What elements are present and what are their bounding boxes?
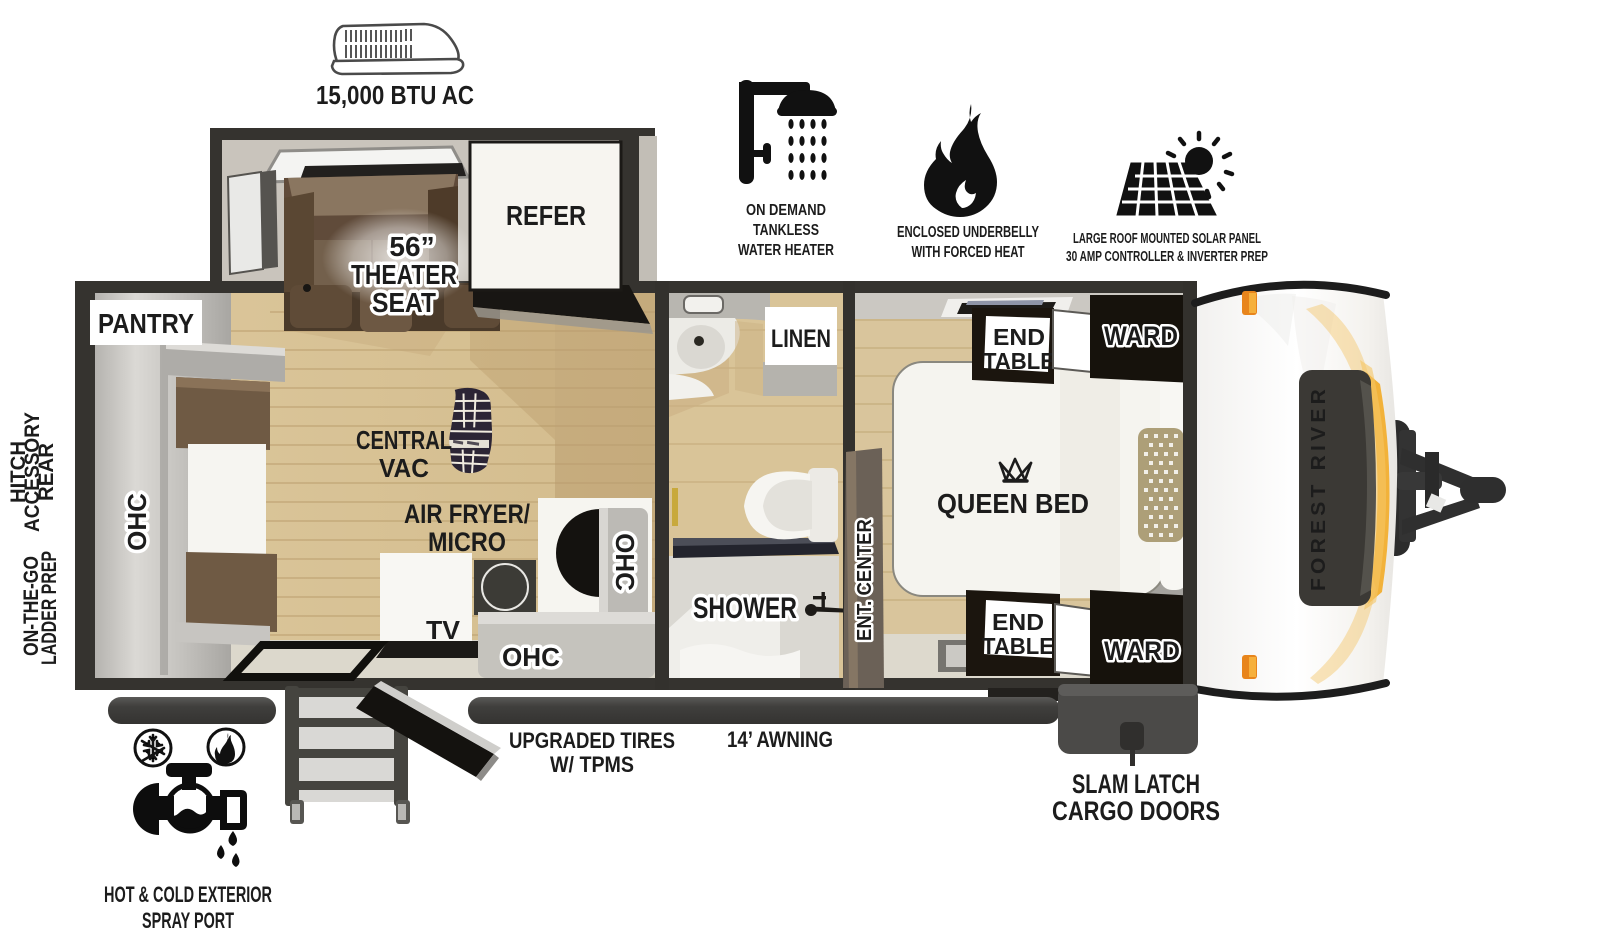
svg-text:TANKLESS: TANKLESS: [753, 222, 819, 239]
svg-text:30 AMP CONTROLLER & INVERTER P: 30 AMP CONTROLLER & INVERTER PREP: [1066, 249, 1268, 265]
svg-text:THEATER: THEATER: [351, 259, 457, 290]
svg-text:SEAT: SEAT: [372, 287, 436, 318]
svg-text:CENTRAL: CENTRAL: [356, 425, 452, 455]
svg-text:ENT. CENTER: ENT. CENTER: [854, 518, 876, 641]
svg-text:14’ AWNING: 14’ AWNING: [727, 727, 833, 752]
svg-text:15,000 BTU AC: 15,000 BTU AC: [316, 80, 474, 110]
svg-text:OHC: OHC: [502, 642, 560, 672]
svg-text:ENCLOSED UNDERBELLY: ENCLOSED UNDERBELLY: [897, 224, 1039, 241]
svg-text:TABLE: TABLE: [983, 348, 1055, 374]
svg-text:CARGO DOORS: CARGO DOORS: [1052, 796, 1220, 826]
svg-text:WATER HEATER: WATER HEATER: [738, 242, 834, 259]
svg-text:SLAM LATCH: SLAM LATCH: [1072, 769, 1200, 799]
svg-text:REFER: REFER: [506, 200, 586, 231]
svg-text:TABLE: TABLE: [982, 633, 1054, 659]
svg-text:UPGRADED TIRES: UPGRADED TIRES: [509, 728, 675, 753]
svg-text:AIR FRYER/: AIR FRYER/: [404, 499, 530, 529]
svg-text:SPRAY PORT: SPRAY PORT: [142, 908, 234, 933]
svg-text:END: END: [992, 609, 1044, 635]
svg-text:HITCH: HITCH: [7, 441, 30, 503]
svg-text:ON DEMAND: ON DEMAND: [746, 202, 826, 219]
svg-text:VAC: VAC: [379, 453, 429, 483]
svg-text:LARGE ROOF MOUNTED SOLAR PANEL: LARGE ROOF MOUNTED SOLAR PANEL: [1073, 231, 1261, 247]
svg-text:HOT & COLD EXTERIOR: HOT & COLD EXTERIOR: [104, 882, 272, 907]
svg-text:FOREST RIVER: FOREST RIVER: [1308, 385, 1330, 591]
svg-text:QUEEN BED: QUEEN BED: [937, 488, 1089, 519]
svg-text:SHOWER: SHOWER: [693, 592, 797, 625]
svg-text:OHC: OHC: [610, 533, 640, 591]
svg-text:TV: TV: [426, 615, 461, 645]
svg-text:WARD: WARD: [1104, 636, 1180, 666]
svg-text:LADDER PREP: LADDER PREP: [38, 551, 61, 665]
svg-text:WARD: WARD: [1104, 321, 1178, 351]
svg-text:MICRO: MICRO: [428, 527, 506, 557]
svg-text:56”: 56”: [389, 231, 434, 262]
svg-text:WITH FORCED HEAT: WITH FORCED HEAT: [912, 244, 1025, 261]
svg-text:OHC: OHC: [122, 493, 152, 551]
svg-text:LINEN: LINEN: [771, 325, 831, 353]
svg-text:PANTRY: PANTRY: [98, 308, 194, 339]
svg-text:W/ TPMS: W/ TPMS: [550, 752, 634, 777]
svg-text:END: END: [993, 324, 1045, 350]
